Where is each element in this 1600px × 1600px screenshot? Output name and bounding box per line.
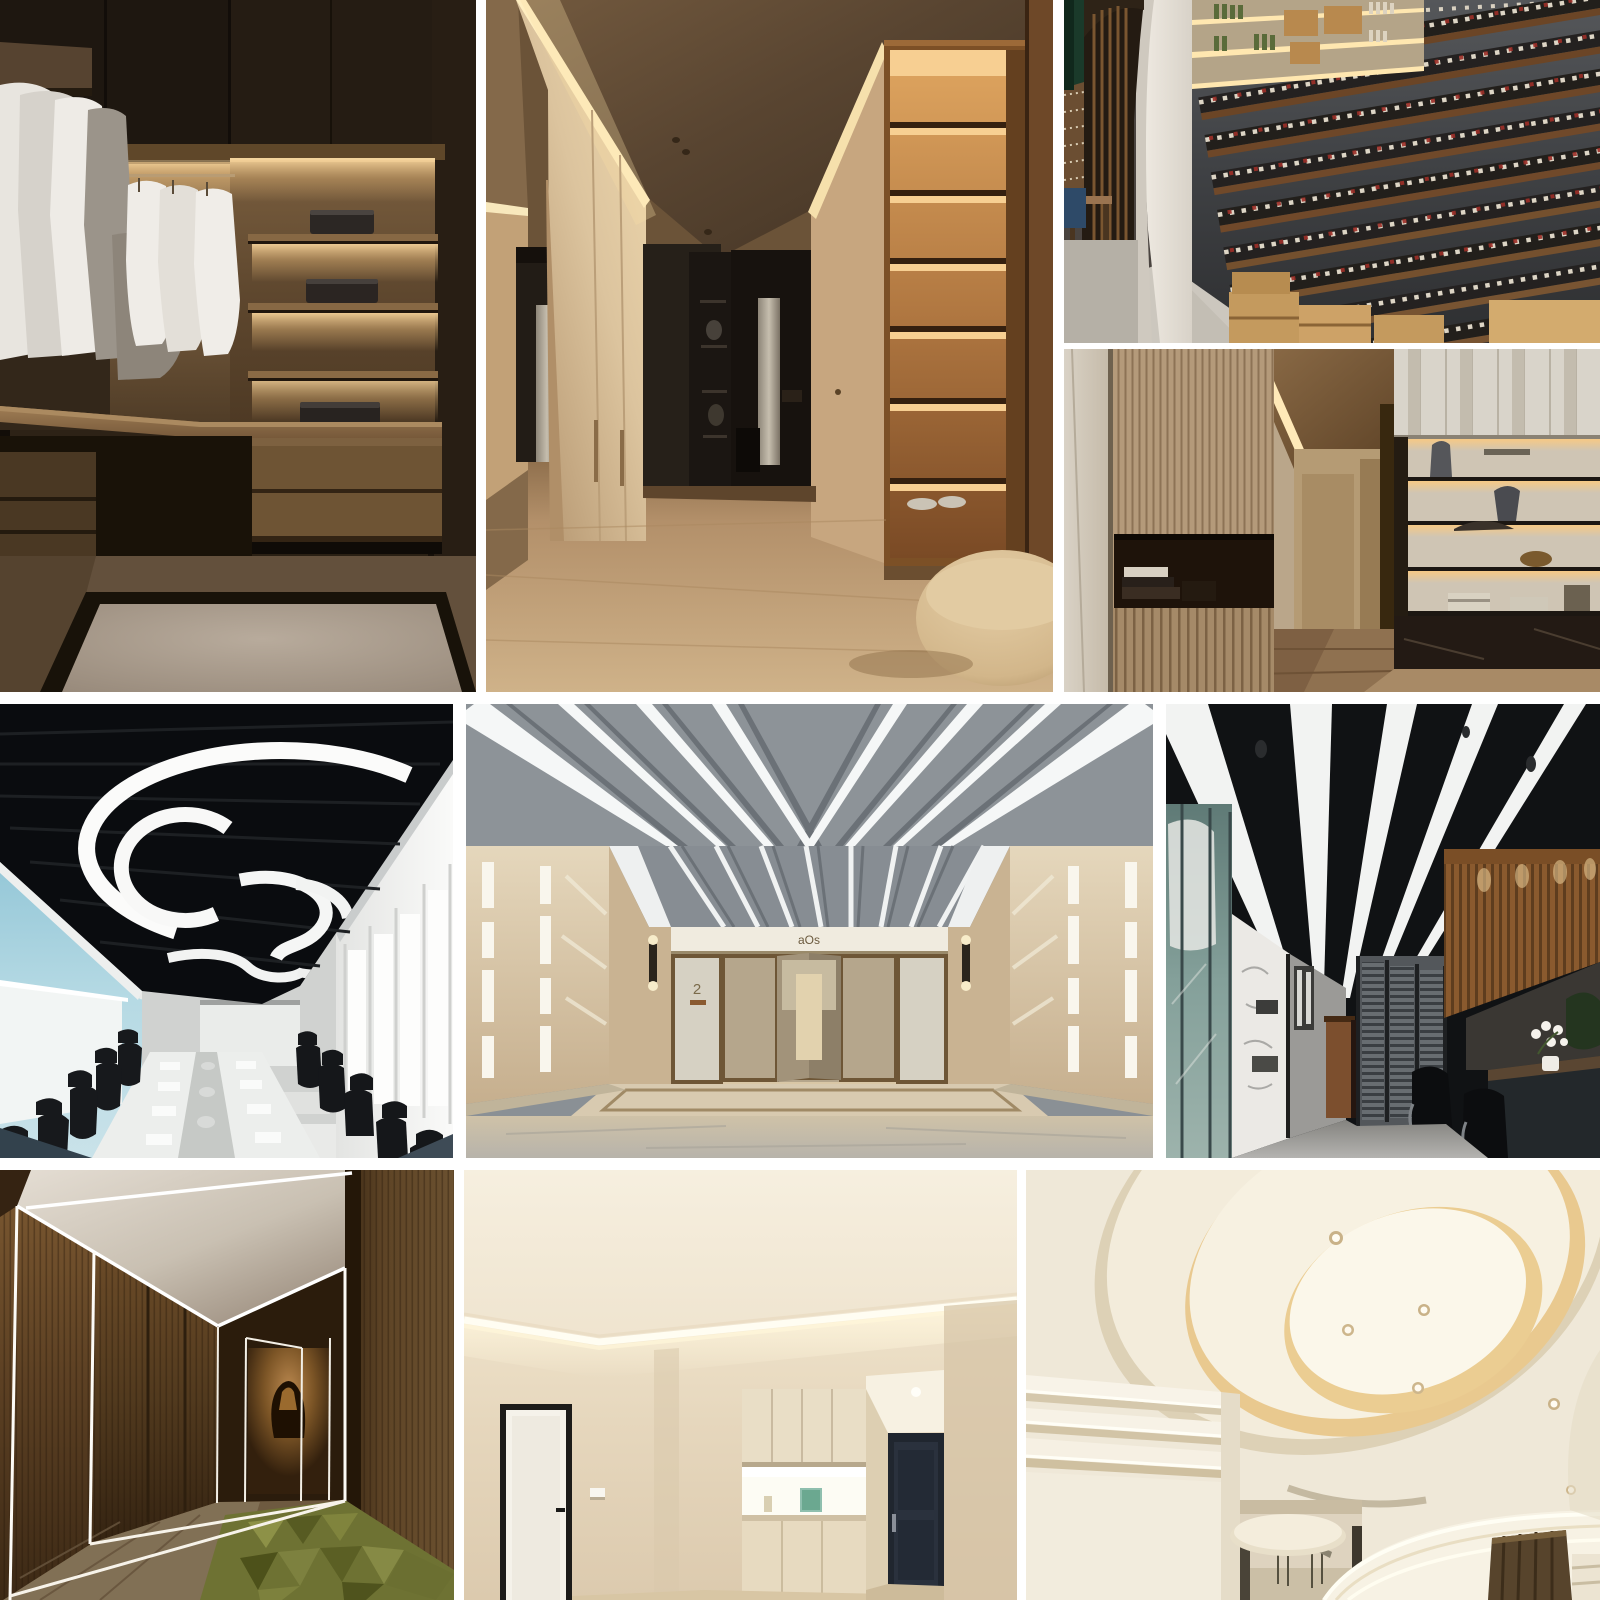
svg-text:2: 2 <box>693 981 701 998</box>
svg-text:aOs: aOs <box>798 933 820 947</box>
